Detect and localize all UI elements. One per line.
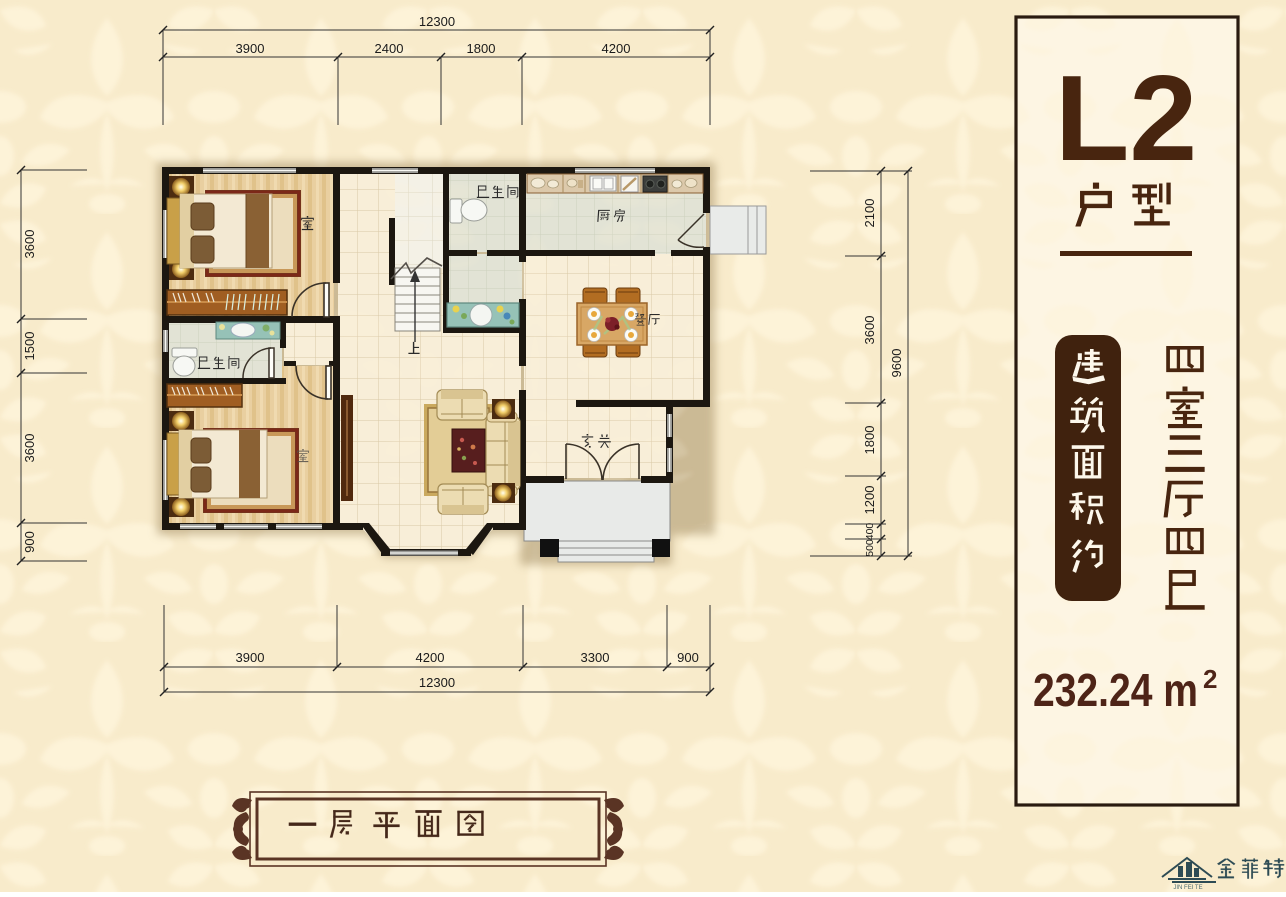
svg-text:3900: 3900 [236,650,265,665]
svg-text:3900: 3900 [236,41,265,56]
svg-text:L2: L2 [1055,50,1197,186]
svg-text:900: 900 [677,650,699,665]
svg-text:2100: 2100 [862,199,877,228]
svg-text:12300: 12300 [419,675,455,690]
svg-text:2400: 2400 [375,41,404,56]
svg-text:3600: 3600 [22,434,37,463]
svg-text:1500: 1500 [22,332,37,361]
svg-text:2: 2 [1203,664,1217,694]
svg-text:1800: 1800 [862,426,877,455]
svg-text:1200: 1200 [862,486,877,515]
svg-text:JIN FEI TE: JIN FEI TE [1173,885,1202,891]
svg-text:3300: 3300 [581,650,610,665]
svg-text:900: 900 [22,531,37,553]
svg-text:12300: 12300 [419,14,455,29]
svg-text:1800: 1800 [467,41,496,56]
svg-text:232.24 m: 232.24 m [1033,664,1198,716]
svg-text:3600: 3600 [862,316,877,345]
svg-text:9600: 9600 [889,349,904,378]
svg-text:400: 400 [864,523,876,541]
svg-text:4200: 4200 [602,41,631,56]
svg-text:500: 500 [864,539,876,557]
svg-text:3600: 3600 [22,230,37,259]
svg-text:4200: 4200 [416,650,445,665]
